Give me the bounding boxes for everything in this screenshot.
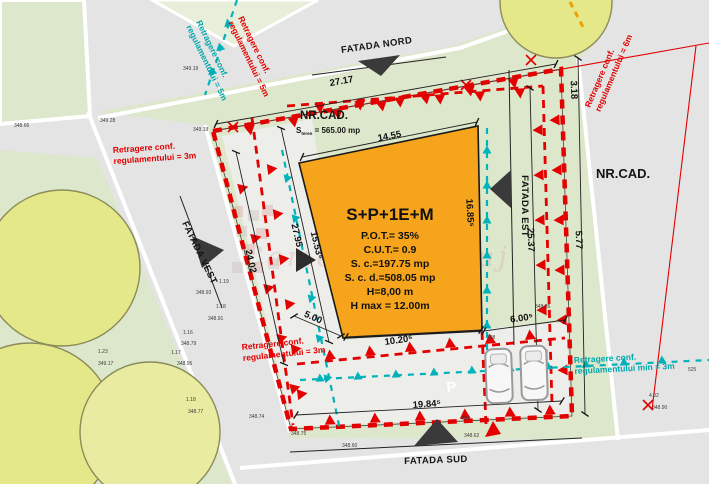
car-icon	[485, 349, 513, 404]
dim-east-depth: 25.37	[525, 228, 537, 252]
site-plan-canvas: Camere de Cluj	[0, 0, 709, 484]
dim-east-top: 3.18	[568, 80, 580, 99]
spot-elevation: 348.85	[535, 304, 551, 310]
spot-elevation: 1.19	[219, 279, 229, 285]
nr-cad-label: NR.CAD.	[300, 110, 348, 122]
building-regime: S+P+1E+M	[346, 205, 433, 224]
building-scd: S. c. d.=508.05 mp	[345, 272, 436, 284]
spot-elevation: 349.19	[183, 66, 199, 72]
building-pot: P.O.T.= 35%	[361, 230, 420, 242]
spot-elevation: 348.75	[291, 431, 307, 437]
spot-elevation: 1.23	[98, 349, 108, 355]
spot-elevation: 349.17	[98, 361, 114, 367]
spot-elevation: 525	[688, 367, 697, 373]
building-cut: C.U.T.= 0.9	[364, 244, 417, 256]
spot-elevation: 348.93	[196, 290, 212, 296]
car-icon	[520, 346, 548, 401]
spot-elevation: 1.18	[186, 397, 196, 403]
spot-elevation: 398	[487, 335, 496, 341]
spot-elevation: 400	[461, 416, 470, 422]
spot-elevation: 348.95	[177, 361, 193, 367]
spot-elevation: 348.60	[342, 443, 358, 449]
spot-elevation: 348.66	[14, 123, 30, 129]
building-h: H=8,00 m	[367, 286, 413, 298]
spot-elevation: 349.19	[193, 127, 209, 133]
spot-elevation: 4.02	[649, 393, 659, 399]
dim-south-front: 19.84⁵	[412, 398, 441, 411]
building-hmax: H max = 12.00m	[350, 300, 429, 312]
parking-label: P	[446, 379, 458, 397]
nr-cad-neighbor-label: NR.CAD.	[596, 166, 650, 181]
site-plan: Camere de Cluj	[0, 0, 709, 484]
fatada-sud-label: FATADA SUD	[404, 454, 468, 467]
spot-elevation: 348.77	[188, 409, 204, 415]
dim-east-strip: 5.77	[573, 230, 585, 249]
spot-elevation: 349.28	[100, 118, 116, 124]
spot-elevation: 1.17	[171, 350, 181, 356]
dim-building-right: 16.85⁵	[463, 198, 475, 227]
spot-elevation: 348.90	[652, 405, 668, 411]
spot-elevation: 348.91	[208, 316, 224, 322]
spot-elevation: 348.74	[249, 414, 265, 420]
spot-elevation: 348.79	[181, 341, 197, 347]
spot-elevation: 1.18	[216, 304, 226, 310]
spot-elevation: 1.16	[183, 330, 193, 336]
building-sc: S. c.=197.75 mp	[351, 258, 430, 270]
spot-elevation: 348.62	[464, 433, 480, 439]
